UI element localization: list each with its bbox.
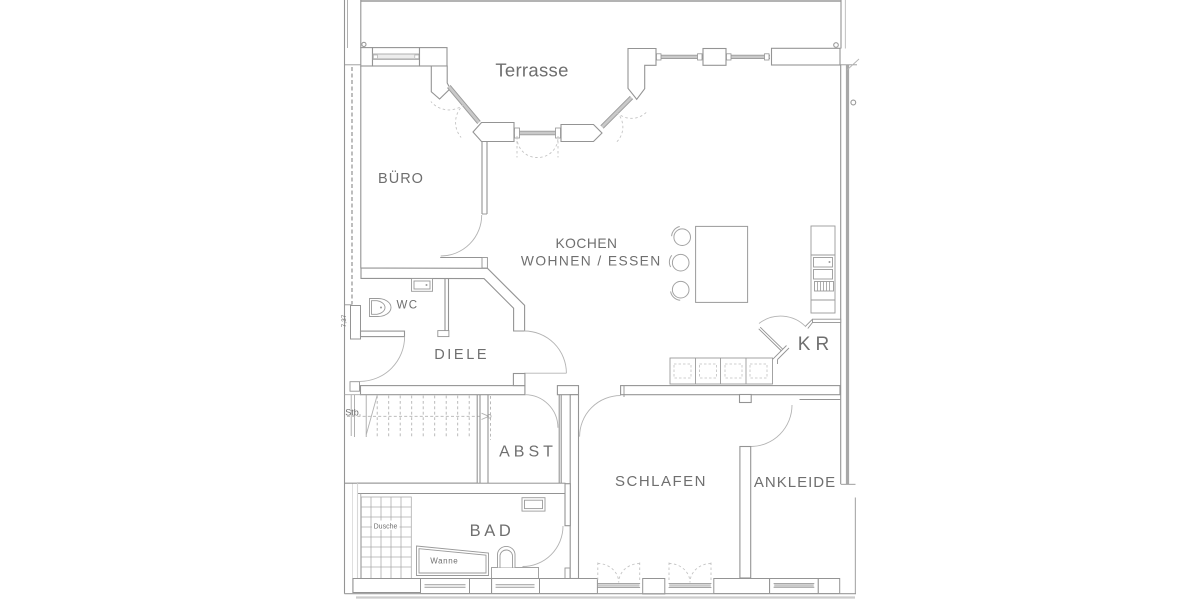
svg-text:BÜRO: BÜRO	[378, 169, 424, 187]
svg-text:ANKLEIDE: ANKLEIDE	[754, 474, 836, 491]
svg-text:DIELE: DIELE	[434, 347, 489, 363]
svg-text:WOHNEN / ESSEN: WOHNEN / ESSEN	[521, 254, 662, 269]
svg-text:Stb.: Stb.	[345, 408, 361, 418]
svg-text:KOCHEN: KOCHEN	[555, 236, 617, 251]
svg-text:WC: WC	[397, 299, 419, 311]
svg-text:7,37: 7,37	[341, 314, 348, 327]
svg-text:Wanne: Wanne	[430, 557, 458, 566]
svg-text:BAD: BAD	[470, 522, 515, 540]
svg-text:SCHLAFEN: SCHLAFEN	[615, 473, 707, 490]
svg-text:ABST: ABST	[499, 444, 557, 461]
svg-text:Terrasse: Terrasse	[495, 60, 568, 81]
svg-text:Dusche: Dusche	[374, 524, 398, 531]
svg-text:KR: KR	[798, 334, 834, 355]
